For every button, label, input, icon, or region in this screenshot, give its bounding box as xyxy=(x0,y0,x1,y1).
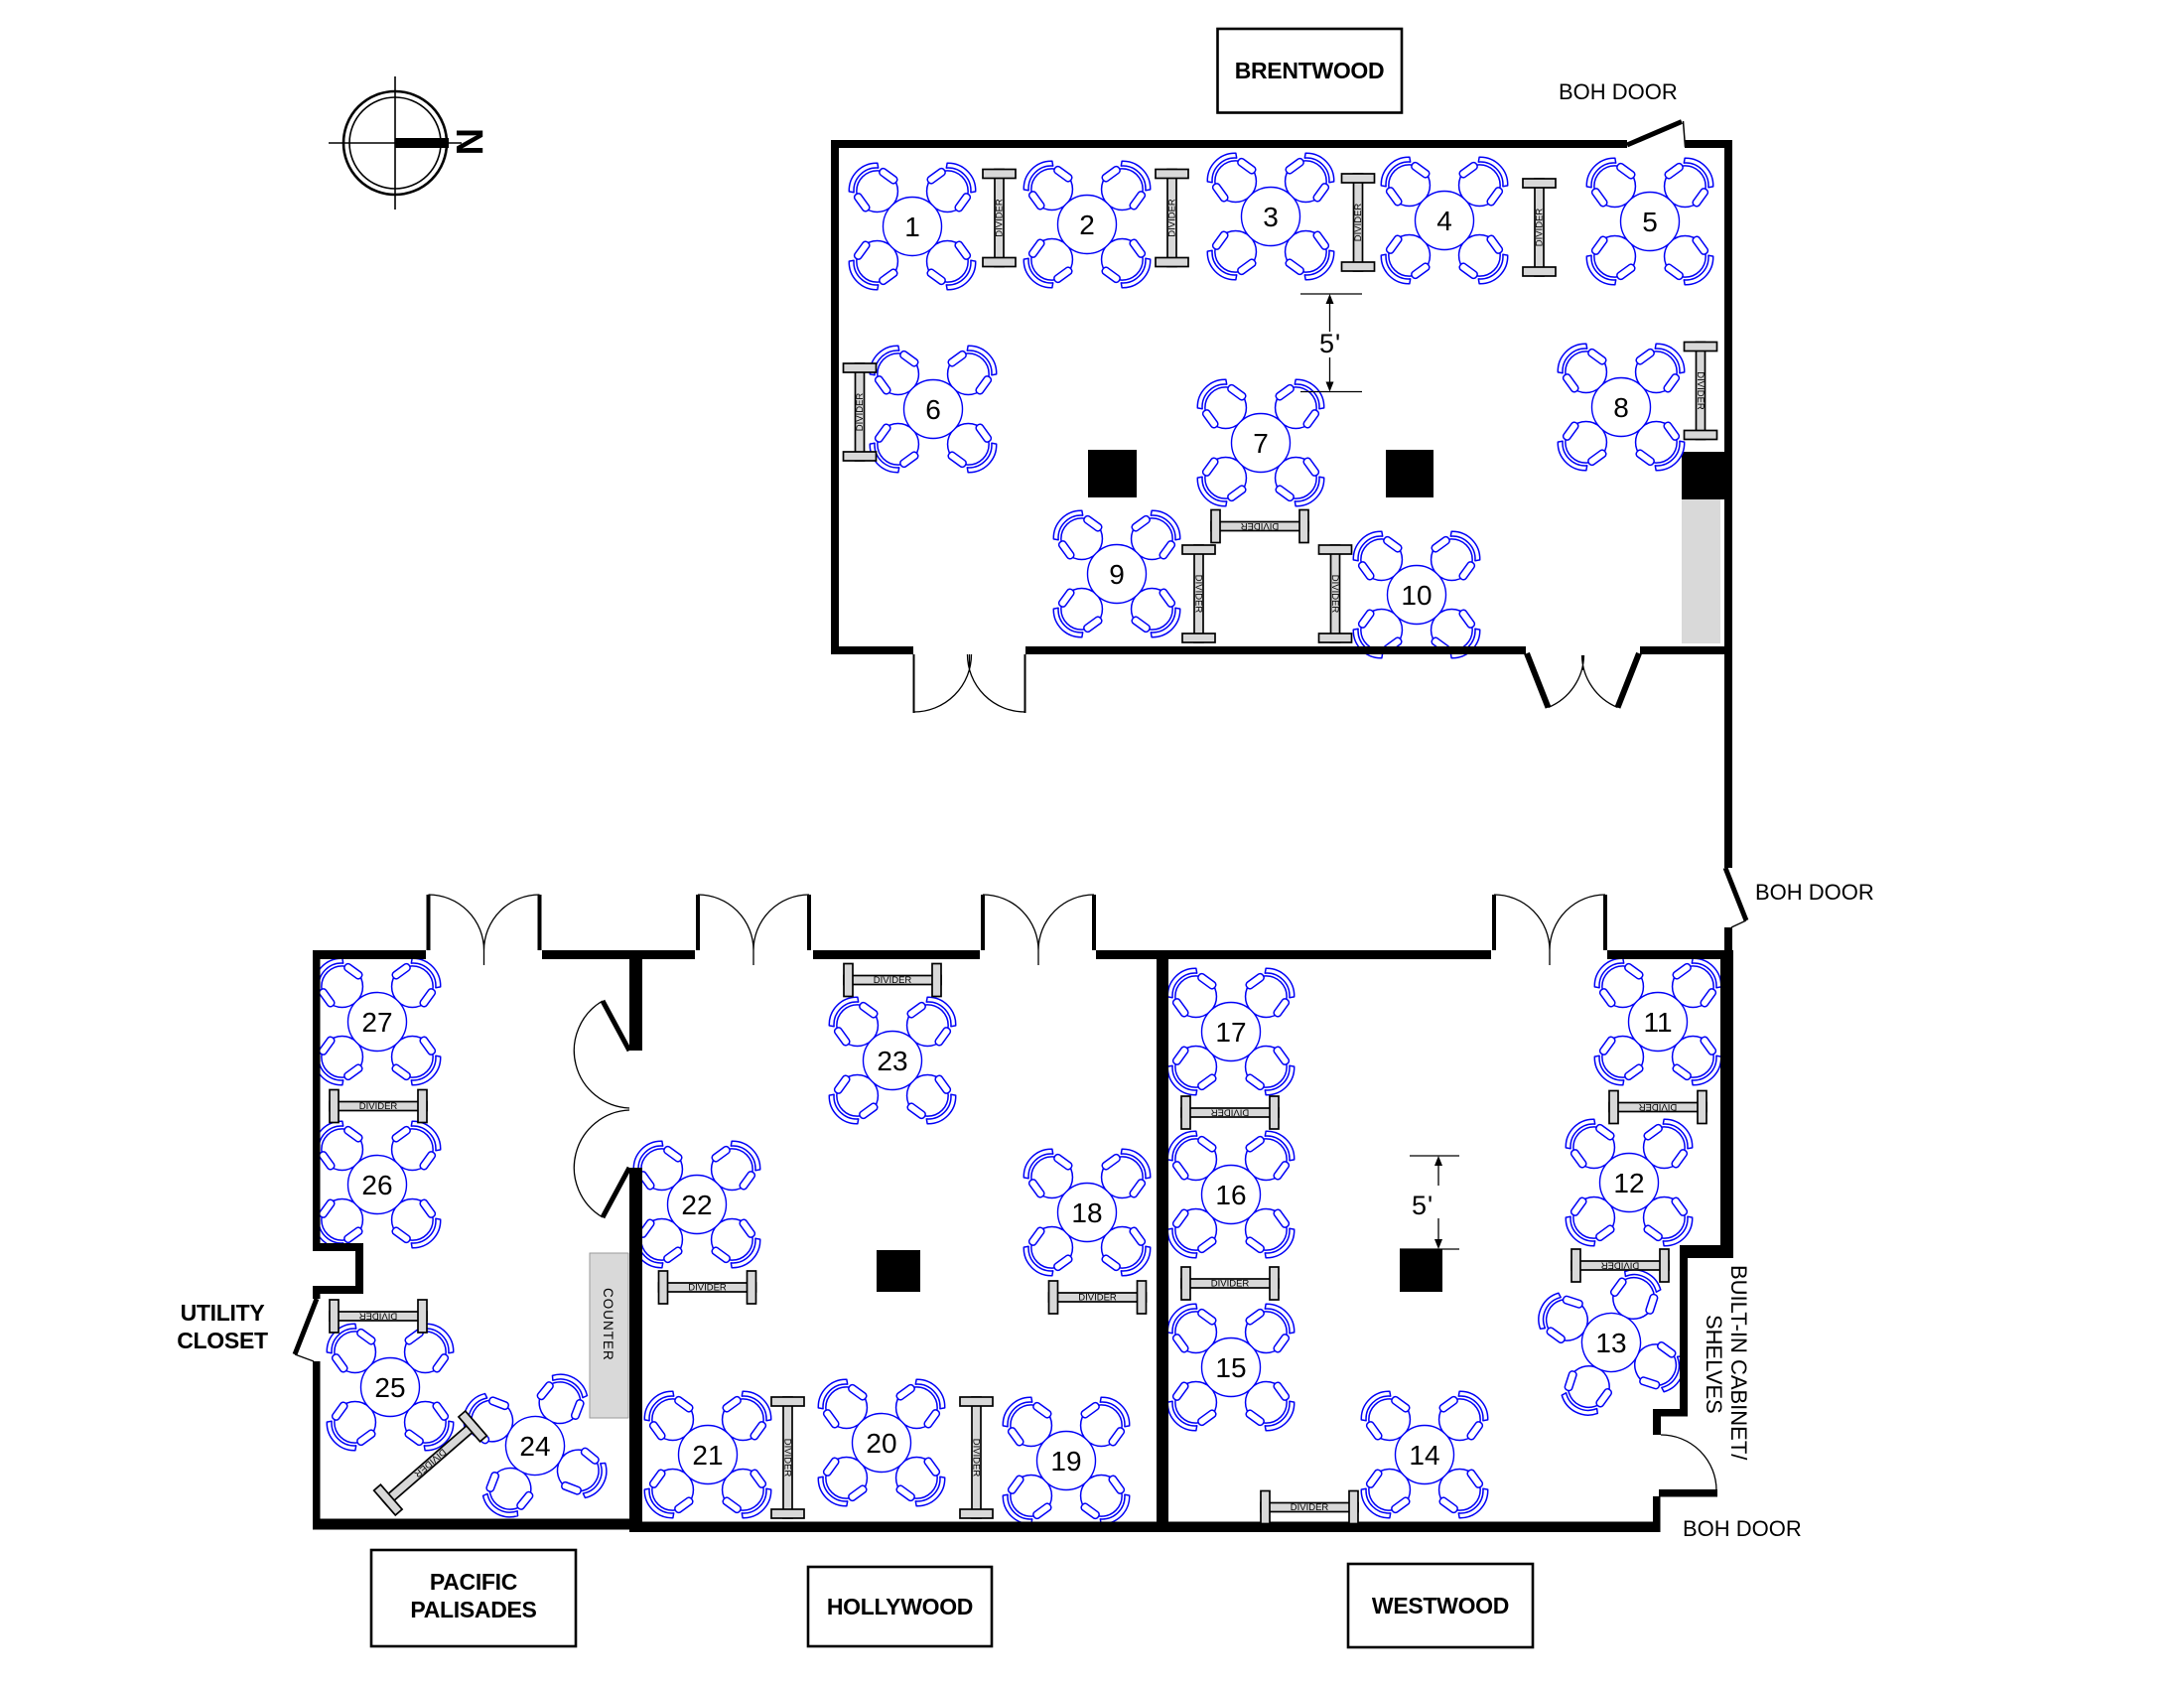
svg-text:PACIFIC: PACIFIC xyxy=(430,1569,517,1595)
svg-text:15: 15 xyxy=(1215,1352,1246,1383)
svg-text:25: 25 xyxy=(374,1372,405,1403)
svg-text:HOLLYWOOD: HOLLYWOOD xyxy=(827,1594,973,1619)
svg-text:BOH DOOR: BOH DOOR xyxy=(1559,79,1678,104)
svg-text:12: 12 xyxy=(1613,1168,1644,1198)
svg-text:N: N xyxy=(448,128,489,155)
svg-text:6: 6 xyxy=(925,394,941,425)
svg-text:WESTWOOD: WESTWOOD xyxy=(1372,1593,1509,1618)
svg-text:COUNTER: COUNTER xyxy=(601,1288,615,1361)
svg-text:22: 22 xyxy=(681,1190,712,1220)
svg-text:4: 4 xyxy=(1436,206,1452,236)
svg-text:18: 18 xyxy=(1071,1197,1102,1228)
svg-text:20: 20 xyxy=(866,1428,896,1459)
svg-text:BRENTWOOD: BRENTWOOD xyxy=(1235,58,1385,83)
svg-text:BOH DOOR: BOH DOOR xyxy=(1755,880,1874,905)
svg-text:7: 7 xyxy=(1253,428,1269,459)
svg-text:14: 14 xyxy=(1409,1440,1439,1471)
svg-text:13: 13 xyxy=(1595,1328,1626,1358)
svg-text:BOH DOOR: BOH DOOR xyxy=(1683,1516,1802,1541)
svg-text:19: 19 xyxy=(1050,1446,1081,1477)
svg-text:26: 26 xyxy=(361,1170,392,1200)
svg-text:10: 10 xyxy=(1401,580,1432,611)
svg-text:27: 27 xyxy=(361,1007,392,1038)
svg-text:5': 5' xyxy=(1412,1191,1433,1220)
svg-text:PALISADES: PALISADES xyxy=(410,1597,536,1622)
svg-text:11: 11 xyxy=(1643,1007,1672,1038)
svg-text:2: 2 xyxy=(1079,210,1095,240)
svg-text:23: 23 xyxy=(877,1046,907,1076)
svg-text:5': 5' xyxy=(1319,329,1341,358)
svg-text:24: 24 xyxy=(519,1431,550,1462)
svg-text:17: 17 xyxy=(1215,1017,1246,1048)
svg-text:3: 3 xyxy=(1263,202,1279,232)
svg-text:1: 1 xyxy=(904,211,920,242)
svg-text:21: 21 xyxy=(692,1440,723,1471)
svg-text:UTILITY: UTILITY xyxy=(181,1300,265,1326)
svg-text:8: 8 xyxy=(1613,392,1629,423)
svg-text:CLOSET: CLOSET xyxy=(177,1328,268,1353)
svg-text:5: 5 xyxy=(1642,207,1658,237)
svg-text:16: 16 xyxy=(1215,1180,1246,1210)
svg-text:9: 9 xyxy=(1109,559,1125,590)
